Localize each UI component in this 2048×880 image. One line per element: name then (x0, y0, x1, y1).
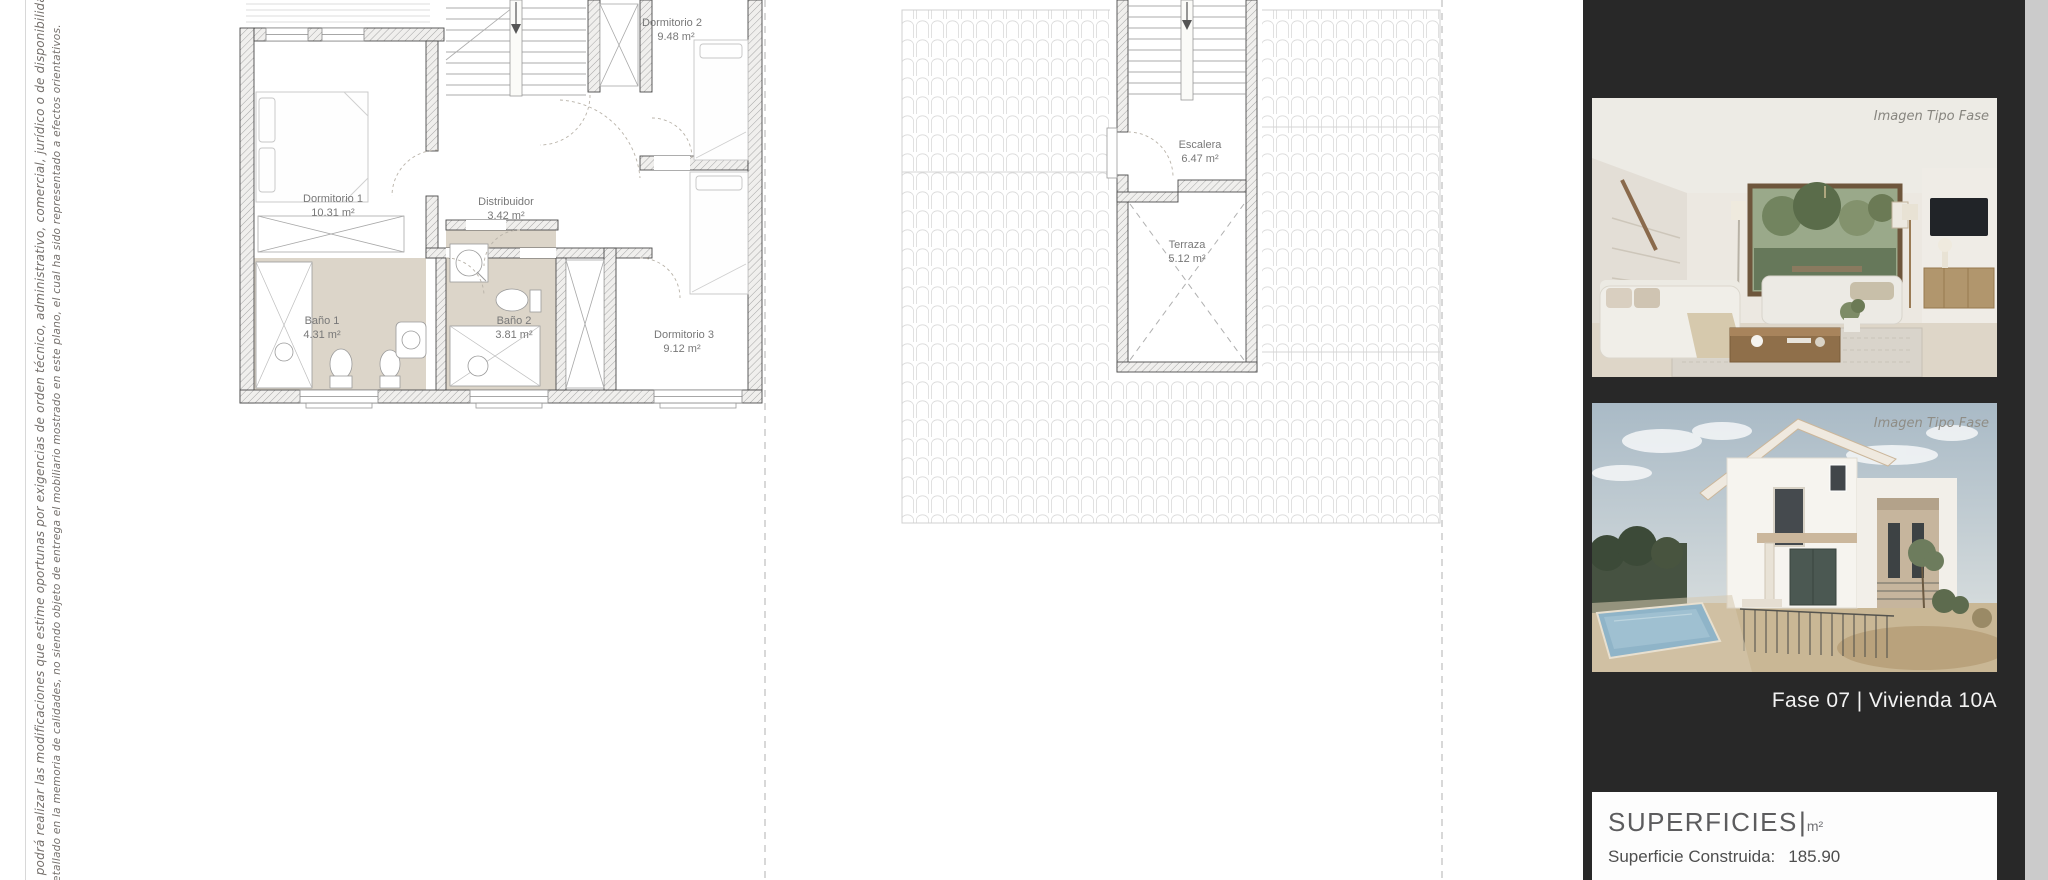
table-lamp (1938, 238, 1952, 252)
room-area: 4.31 m² (303, 329, 341, 341)
room-label: Escalera (1179, 139, 1223, 151)
exterior-render-svg: Imagen Tipo Fase (1592, 403, 1997, 672)
phase-dwelling-caption: Fase 07 | Vivienda 10A (1592, 686, 1997, 716)
room-area: 10.31 m² (311, 207, 355, 219)
sideboard (1924, 268, 1994, 308)
room-area: 5.12 m² (1168, 253, 1206, 265)
door-gap-bath2 (520, 248, 556, 258)
page-edge-strip (2025, 0, 2048, 880)
surfaces-unit: m² (1807, 818, 1823, 834)
porch-eaves-lines (246, 4, 430, 22)
upper-floor-plan: Dormitorio 1 10.31 m² Dormitorio 2 9.48 … (240, 0, 762, 408)
room-label: Terraza (1169, 239, 1207, 251)
room-area: 3.42 m² (487, 210, 525, 222)
exterior-render-photo: Imagen Tipo Fase (1592, 403, 1997, 672)
plant-pot (1844, 318, 1860, 332)
room-label: Dormitorio 3 (654, 329, 714, 341)
surfaces-title-row: SUPERFICIES|m² (1608, 807, 1997, 838)
surface-built-row: Superficie Construida:185.90 (1608, 847, 1997, 867)
photo-type-label: Imagen Tipo Fase (1874, 416, 1989, 431)
tower-door-recess (1107, 128, 1117, 178)
shower-drain-icon (275, 343, 293, 361)
room-label: Baño 1 (305, 315, 340, 327)
room-area: 6.47 m² (1181, 153, 1219, 165)
surface-built-label: Superficie Construida: (1608, 847, 1775, 866)
toilet2-icon (496, 289, 528, 311)
shrubs (1972, 608, 1992, 628)
roof-plan: Escalera 6.47 m² Terraza 5.12 m² (902, 0, 1440, 523)
photo-type-label: Imagen Tipo Fase (1874, 109, 1989, 124)
stairs-upper (446, 0, 586, 96)
surfaces-box: SUPERFICIES|m² Superficie Construida:185… (1592, 792, 1997, 880)
sidebar: Imagen Tipo Fase (1583, 0, 2048, 880)
room-area: 9.12 m² (663, 343, 701, 355)
room-label: Dormitorio 1 (303, 193, 363, 205)
porch-canopy (1757, 533, 1857, 543)
interior-render-photo: Imagen Tipo Fase (1592, 98, 1997, 377)
toilet-icon (330, 349, 352, 379)
small-window (1830, 465, 1846, 491)
surfaces-separator: | (1799, 807, 1806, 837)
porch-column (1765, 543, 1774, 605)
brochure-page: SL podrá realizar las modificaciones que… (0, 0, 2048, 880)
surface-built-value: 185.90 (1788, 847, 1840, 866)
room-label: Distribuidor (478, 196, 534, 208)
floor-lamp (1902, 204, 1918, 220)
room-area: 3.81 m² (495, 329, 533, 341)
surfaces-title: SUPERFICIES (1608, 807, 1798, 837)
tree (1924, 551, 1944, 571)
room-label: Dormitorio 2 (642, 17, 702, 29)
interior-render-svg: Imagen Tipo Fase (1592, 98, 1997, 377)
room-label: Baño 2 (497, 315, 532, 327)
door-gap-dorm2 (654, 156, 690, 170)
tv (1930, 198, 1988, 236)
room-area: 9.48 m² (657, 31, 695, 43)
